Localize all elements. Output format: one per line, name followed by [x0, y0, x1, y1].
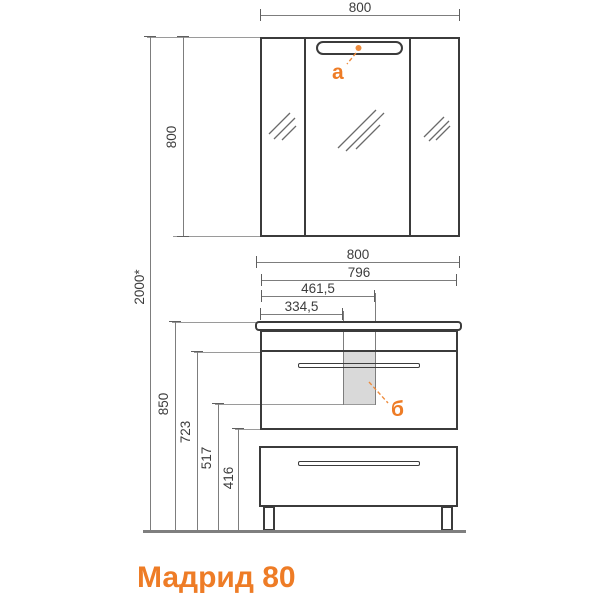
- dimension-line-body-width: [261, 280, 457, 281]
- dimension-line-sink-left: [260, 314, 343, 315]
- dimension-line-vanity-height: [175, 322, 176, 531]
- dimension-line-723: [197, 352, 198, 531]
- vanity-upper-outline: [260, 330, 458, 430]
- dim-vanity-height: 850: [157, 384, 171, 424]
- dim-tick: [177, 36, 189, 37]
- dim-sink-offset-left: 334,5: [260, 300, 343, 314]
- dim-counter-bottom: 723: [179, 412, 193, 452]
- dim-tick: [169, 321, 181, 322]
- dim-tick: [232, 428, 244, 429]
- extension-line-counter-bottom: [194, 352, 262, 353]
- dim-mirror-width: 800: [260, 1, 460, 15]
- mirror-cabinet-outline: [260, 37, 460, 237]
- dim-tick: [191, 351, 203, 352]
- mirror-door-divider-left: [304, 39, 306, 235]
- dimension-line-sink-right: [261, 296, 375, 297]
- extension-line-cabinet-top: [147, 37, 260, 38]
- dim-vanity-body-width: 796: [261, 266, 457, 280]
- label-light-callout: а: [332, 62, 344, 83]
- dimension-line-mirror-height: [183, 37, 184, 237]
- technical-drawing: 800 800 2000* 800 796 461,5 334,5 850 72…: [0, 0, 600, 600]
- extension-line-counter-top: [172, 322, 256, 323]
- dim-tick: [212, 403, 224, 404]
- dim-total-height: 2000*: [133, 262, 147, 312]
- mirror-door-divider-right: [409, 39, 411, 235]
- leg-left: [263, 506, 275, 531]
- drawing-title: Мадрид 80: [137, 562, 296, 594]
- dim-tick: [144, 36, 156, 37]
- dim-siphon-bottom: 517: [200, 438, 214, 478]
- leg-right: [441, 506, 453, 531]
- upper-drawer-handle: [298, 363, 420, 368]
- extension-line-drawer-bottom: [235, 429, 262, 430]
- dim-drawer-bottom: 416: [222, 458, 236, 498]
- dimension-line-mirror-width: [260, 15, 460, 16]
- label-siphon-callout: б: [391, 399, 404, 420]
- dim-sink-offset-right: 461,5: [261, 282, 375, 296]
- light-fixture: [316, 41, 403, 55]
- dimension-line-total-height: [150, 37, 151, 531]
- dim-mirror-height: 800: [165, 117, 179, 157]
- dimension-line-517: [218, 404, 219, 531]
- lower-drawer-outline: [259, 446, 458, 507]
- dim-vanity-width: 800: [256, 248, 460, 262]
- dimension-line-416: [238, 429, 239, 531]
- lower-drawer-handle: [298, 461, 420, 466]
- vanity-top-rail-line: [262, 350, 456, 352]
- dim-tick: [177, 236, 189, 237]
- dimension-line-vanity-width: [256, 262, 460, 263]
- floor-line: [143, 530, 466, 533]
